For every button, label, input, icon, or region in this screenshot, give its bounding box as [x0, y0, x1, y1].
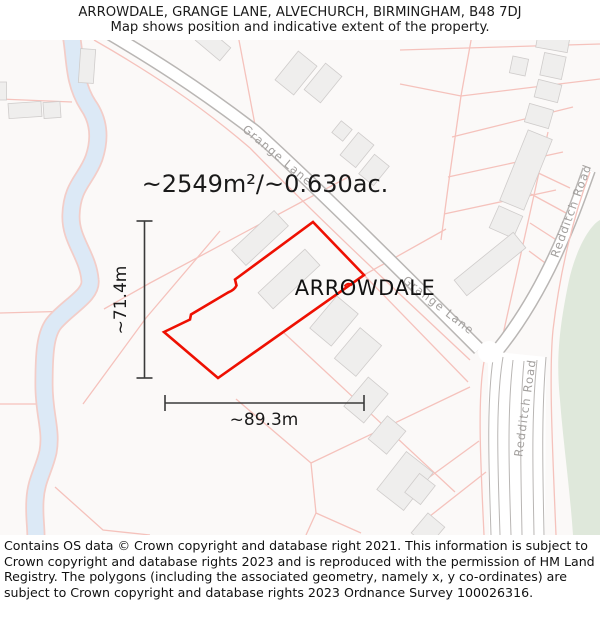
- header: ARROWDALE, GRANGE LANE, ALVECHURCH, BIRM…: [0, 0, 600, 40]
- page-subtitle: Map shows position and indicative extent…: [0, 20, 600, 36]
- property-name-label: ARROWDALE: [295, 276, 435, 300]
- page-title: ARROWDALE, GRANGE LANE, ALVECHURCH, BIRM…: [0, 0, 600, 20]
- area-label: ~2549m²/~0.630ac.: [142, 170, 389, 198]
- dimension-width-label: ~89.3m: [230, 410, 299, 430]
- footer-copyright: Contains OS data © Crown copyright and d…: [4, 538, 596, 600]
- dimension-height-label: ~71.4m: [111, 266, 131, 335]
- map-canvas: ~71.4m ~89.3m Grange Lane Grange Lane Re…: [0, 38, 600, 535]
- map-svg: ~71.4m ~89.3m Grange Lane Grange Lane Re…: [0, 38, 600, 535]
